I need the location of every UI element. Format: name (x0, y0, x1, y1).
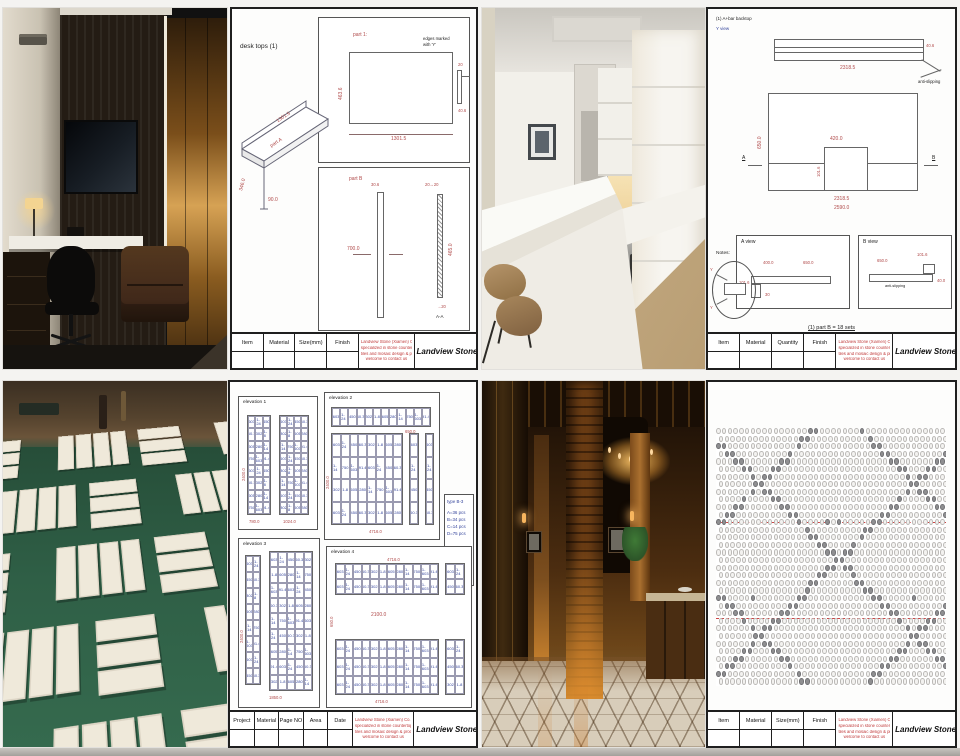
dim-main-width-2: 2590.0 (834, 206, 849, 211)
elevation3-grid-a: 6031-2445060.33021-86052801-147501-60391… (245, 555, 261, 685)
company-note-line: specialized in stone countertops, (838, 724, 890, 729)
detail-y-bottom: Y (710, 305, 713, 310)
sheet-paving-elevations: elevation 1 6031-2445060.33021-86052801-… (228, 380, 478, 748)
dim-edge-b: 40.6 (458, 108, 466, 113)
dim-e4-cut: 2100.0 (371, 613, 386, 618)
b-view-box: B view 650.0 101.6 40.0 anti-slipping (858, 235, 952, 309)
arrow-b-label: B (932, 155, 935, 161)
photo-hotel-desk-area (2, 7, 228, 370)
notes-label: Notes: (716, 251, 730, 256)
dim-e3-width: 1850.0 (269, 695, 282, 700)
desk-drawers (3, 252, 50, 352)
edge-note-2: with 'Y' (423, 42, 436, 47)
titleblock-col-item: Item (708, 712, 739, 730)
elevation2-grid-top: 6031-2445060.33021-86052801-147501-60391… (331, 407, 431, 427)
company-note-line: Landview Stone (Xiamen) Co.,Ltd. (361, 340, 412, 345)
elevation3-label: elevation 3 (243, 542, 266, 547)
elevation2-grid-right: 6031-2445060.3 (409, 433, 419, 525)
desk-lamp-glow (13, 188, 57, 232)
dim-e2-inner: 650.0 (405, 429, 415, 434)
framed-picture (528, 124, 556, 160)
elevation1-grid-b: 6031-2445060.33021-86052801-147501-60391… (279, 415, 309, 515)
elevation4-grid-bottomright: 6031-2445060.33021-8 (445, 639, 465, 695)
counter-top (646, 593, 706, 601)
b-view-dim-3: 40.0 (937, 278, 945, 283)
elevation2-grid-far: 6031-2445060.3 (425, 433, 434, 525)
dim-main-height: 650.0 (758, 136, 763, 149)
sheet-desk-tops: desk tops (1) part 1: 1301.5 463.6 edges… (230, 7, 478, 370)
elevation1-grid-a: 6031-2445060.33021-86052801-147501-60391… (247, 415, 271, 515)
sheet-header-1: (1) A+bar backtop (716, 16, 752, 21)
part1-plan (349, 52, 453, 124)
landview-logo-text: Landview Stone (895, 347, 956, 356)
elevation2-grid-main: 6031-2445060.33021-86052801-147501-60391… (331, 433, 403, 525)
elevation2-box: elevation 2 6031-2445060.33021-86052801-… (324, 392, 440, 540)
framed-art (526, 531, 542, 553)
brick-column (566, 381, 603, 699)
dim-partB-height: 700.0 (347, 247, 360, 252)
titleblock-mosaic: Item Material Size(mm) Finish Landview S… (708, 710, 955, 746)
titleblock-bar: Item Material Quantity Finish Landview S… (708, 332, 955, 368)
dim-e2-width: 4716.0 (369, 529, 382, 534)
partB-bar (377, 192, 384, 318)
sheet-bar-top: (1) A+bar backtop Y view 2318.5 40.6 ant… (706, 7, 957, 370)
photo-ornate-lobby (481, 380, 706, 748)
partB-label: part B (349, 176, 362, 182)
part1-box: part 1: 1301.5 463.6 edges marked with '… (318, 17, 470, 163)
dim-main-width: 2318.5 (834, 197, 849, 202)
site-object (99, 395, 107, 429)
landview-logo-text: Landview Stone (417, 347, 478, 356)
dim-prof-bottom: →20 (437, 304, 446, 309)
company-note: Landview Stone (Xiamen) Co.,Ltd. special… (836, 712, 893, 746)
type-note-line: C=14 pcs (447, 523, 471, 530)
company-note-line: Landview Stone (Xiamen) Co.,Ltd. (838, 340, 890, 345)
titleblock-col-finish: Finish (804, 334, 835, 352)
photo-white-kitchen (481, 7, 706, 370)
arrow-a-label: A (742, 155, 745, 161)
partB-section-bar (437, 194, 443, 298)
desk-lamp (25, 198, 43, 209)
site-object (19, 403, 59, 415)
titleblock-col-finish: Finish (804, 712, 835, 730)
elevation4-box: elevation 4 4716.0 6031-2445060.33021-86… (326, 546, 472, 708)
brand-logo: Landview Stone (414, 712, 476, 746)
titleblock-col-area: Area (304, 712, 328, 730)
titleblock-paving: Project Material Page NO Area Date Landv… (230, 710, 476, 746)
column-reflection (574, 667, 588, 747)
company-note-line: welcome to contact us (355, 735, 412, 740)
a-view-dim-1: 400.0 (763, 260, 773, 265)
titleblock-col-size: Size(mm) (295, 334, 326, 352)
landview-logo-text: Landview Stone (416, 725, 477, 734)
company-note-line: tiles and mosaic design & processing (838, 352, 890, 357)
counter-bowl (678, 587, 692, 592)
sink-cutout (824, 147, 868, 191)
dim-part1-height: 463.6 (339, 87, 344, 100)
telephone (67, 227, 84, 236)
type-note-line: D=75 pcs (447, 530, 471, 537)
company-note: Landview Stone (Xiamen) Co.,Ltd. special… (353, 712, 415, 746)
company-note-line: tiles and mosaic design & processing (361, 352, 412, 357)
ceiling-recess (552, 16, 642, 42)
company-note-line: welcome to contact us (361, 357, 412, 362)
quantity-note: (1) part B = 18 sets (708, 325, 955, 331)
company-note-line: welcome to contact us (838, 735, 890, 740)
dim-e4-bottom: 4716.0 (375, 699, 388, 704)
titleblock-col-item: Item (232, 334, 263, 352)
type-note-line: A=36 pcs (447, 509, 471, 516)
antislip-note: anti-slipping (918, 79, 940, 84)
type-note-line: type B-3 (447, 498, 471, 505)
bottom-shadow-strip (0, 748, 960, 756)
dim-cut-width: 420.0 (830, 137, 843, 142)
elevation4-grid-bottom: 6031-2445060.33021-86052801-147501-60391… (335, 639, 439, 695)
site-object (121, 391, 126, 421)
dim-partA-depth: 346.0 (238, 178, 247, 192)
partB-box: part B 30.6 700.0 20↔20 465.0 →20 A-A (318, 167, 470, 331)
desk-lamp-stem (33, 209, 35, 236)
wood-stool (496, 296, 542, 336)
edge-note-1: edges marked (423, 36, 450, 41)
collage-canvas: desk tops (1) part 1: 1301.5 463.6 edges… (0, 0, 960, 756)
profile-tag: A-A (436, 314, 444, 319)
wall-sconce (630, 511, 634, 521)
dim-e1-b: 1024.0 (283, 519, 296, 524)
brand-logo: Landview Stone (893, 712, 955, 746)
company-note-line: specialized in stone countertops, (355, 724, 412, 729)
wood-counter (646, 601, 706, 679)
a-view-dim-4: 30 (765, 292, 770, 297)
dim-partB-top: 30.6 (371, 182, 379, 187)
titleblock-col-project: Project (230, 712, 254, 730)
company-note: Landview Stone (Xiamen) Co.,Ltd. special… (836, 334, 893, 368)
part1-label: part 1: (353, 32, 367, 38)
titleblock-col-size: Size(mm) (772, 712, 803, 730)
dim-partA-angle: 90.0 (268, 197, 278, 203)
wall-tv (64, 120, 138, 194)
landview-logo-text: Landview Stone (895, 725, 956, 734)
wood-stool (484, 264, 526, 300)
dim-part1-width: 1301.5 (391, 137, 406, 142)
titleblock-col-quantity: Quantity (772, 334, 803, 352)
company-note-line: specialized in stone countertops, (361, 346, 412, 351)
type-note-line: B=34 pcs (447, 516, 471, 523)
titleblock-col-material: Material (740, 712, 771, 730)
sheet-header-2: Y view (716, 26, 729, 31)
detail-y-top: Y (710, 267, 713, 272)
titleblock-col-material: Material (264, 334, 295, 352)
titleblock-col-material: Material (255, 712, 279, 730)
sheet-mosaic-pattern: Item Material Size(mm) Finish Landview S… (706, 380, 957, 748)
dim-prof-top: 20↔20 (425, 182, 439, 187)
elevation1-box: elevation 1 6031-2445060.33021-86052801-… (238, 396, 318, 530)
chandelier-bulb (608, 447, 611, 453)
elevation4-grid-topright: 6031-2445060.3 (445, 563, 465, 595)
company-note-line: tiles and mosaic design & processing (838, 730, 890, 735)
photo-paving-tiles (2, 380, 228, 748)
elevation3-box: elevation 3 6031-2445060.33021-86052801-… (238, 538, 320, 708)
elevation4-label: elevation 4 (331, 550, 354, 555)
office-chair-post (69, 314, 73, 336)
bar-plan-outer (774, 39, 924, 61)
a-view-label: A view (741, 239, 755, 245)
company-note-line: welcome to contact us (838, 357, 890, 362)
b-view-label: B view (863, 239, 878, 245)
brand-logo: Landview Stone (893, 334, 955, 368)
dim-prof-height: 465.0 (449, 243, 454, 256)
column-reflection (538, 667, 552, 747)
company-note-line: tiles and mosaic design & processing (355, 730, 412, 735)
b-view-dim-2: 101.6 (917, 252, 927, 257)
company-note: Landview Stone (Xiamen) Co.,Ltd. special… (359, 334, 415, 368)
dim-e2-side: 2400.0 (325, 476, 330, 489)
dim-e1-a: 780.0 (249, 519, 259, 524)
sheet-title: desk tops (1) (240, 43, 278, 50)
brand-logo: Landview Stone (415, 334, 476, 368)
chandelier-bulb (618, 453, 621, 459)
company-note-line: Landview Stone (Xiamen) Co.,Ltd. (355, 718, 412, 723)
titleblock-col-item: Item (708, 334, 739, 352)
leather-chair (121, 246, 189, 322)
titleblock-col-material: Material (740, 334, 771, 352)
titleblock-col-finish: Finish (327, 334, 358, 352)
chandelier-bulb (650, 449, 653, 455)
a-view-dim-2: 650.0 (803, 260, 813, 265)
elevation2-label: elevation 2 (329, 396, 352, 401)
carpet-floor (3, 345, 227, 369)
b-view-antislip: anti-slipping (885, 284, 905, 288)
office-chair-back (47, 246, 95, 308)
mid-cabinets (598, 68, 634, 176)
ceiling-edge (60, 8, 172, 15)
titleblock-col-date: Date (328, 712, 352, 730)
titleblock-col-pageno: Page NO (279, 712, 303, 730)
dim-e1-side: 2400.0 (241, 468, 246, 481)
company-note-line: specialized in stone countertops, (838, 346, 890, 351)
elevation1-label: elevation 1 (243, 400, 266, 405)
b-view-dim-1: 650.0 (877, 258, 887, 263)
elevation3-grid-b: 6031-2445060.33021-86052801-147501-60391… (269, 551, 313, 691)
dim-edge-a: 20 (458, 62, 463, 67)
elevation4-grid-top: 6031-2445060.33021-86052801-147501-60391… (335, 563, 439, 595)
air-vent (19, 34, 47, 45)
wall-sconce (522, 513, 526, 523)
dim-bar-length: 2318.5 (840, 66, 855, 71)
dim-e4-top: 4716.0 (387, 557, 400, 562)
dim-e4-side: 650.0 (329, 617, 334, 627)
mosaic-pattern (716, 428, 946, 686)
dim-cut-height: 101.6 (816, 167, 821, 177)
dim-bar-end: 40.6 (926, 43, 934, 48)
company-note-line: Landview Stone (Xiamen) Co.,Ltd. (838, 718, 890, 723)
dim-e3-side: 2400.0 (239, 630, 244, 643)
plant (622, 527, 648, 561)
paving-plane (2, 410, 228, 748)
titleblock-desk: Item Material Size(mm) Finish Landview S… (232, 332, 476, 368)
